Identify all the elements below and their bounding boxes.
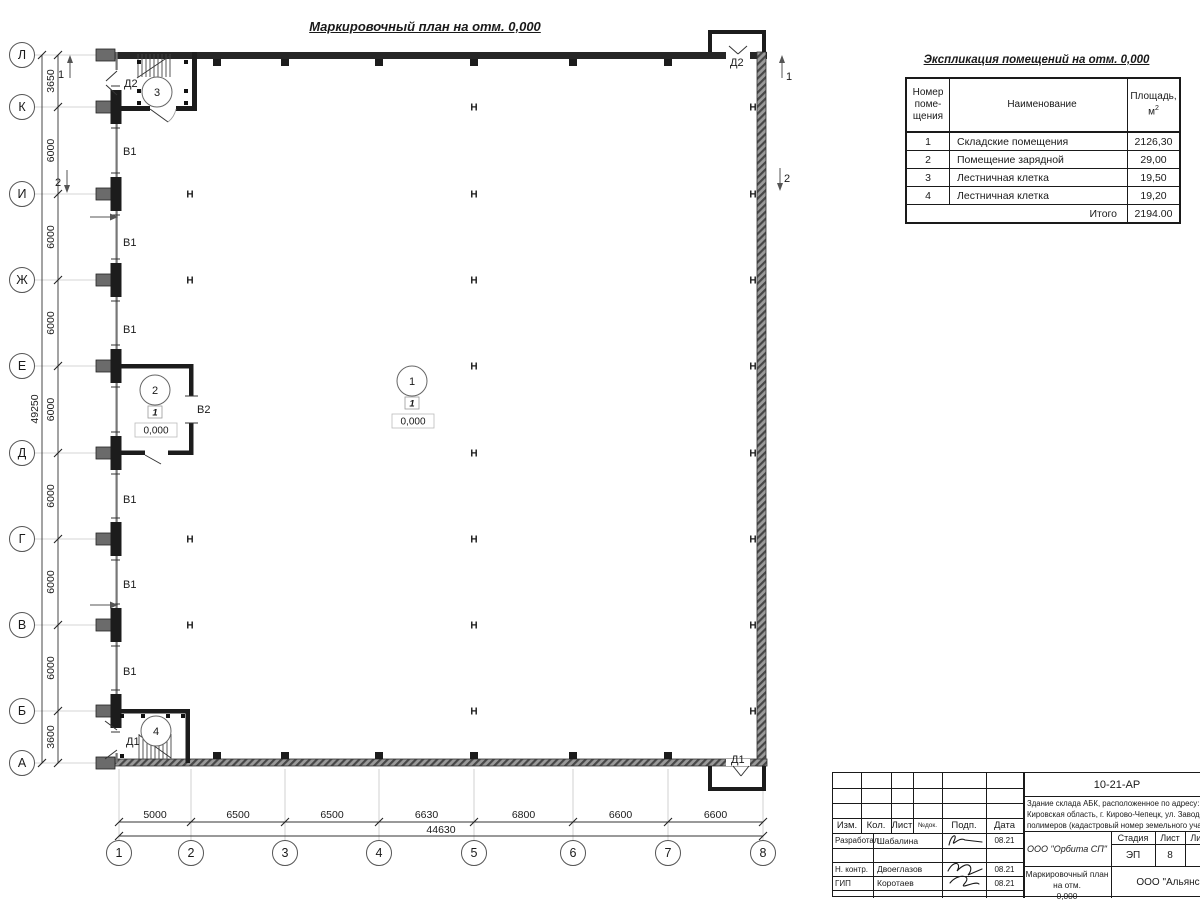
- wall-pilaster: [569, 59, 577, 66]
- tb-sheet-value: 8: [1155, 844, 1185, 866]
- dim-text: 6000: [45, 570, 57, 594]
- floor-type-number: 1: [152, 408, 157, 419]
- tb-col-izm: Изм.: [833, 818, 861, 833]
- axis-label: Д: [18, 446, 27, 460]
- axis-label: В: [18, 618, 26, 632]
- column-dot: [137, 101, 141, 105]
- dim-text: 6000: [45, 484, 57, 508]
- elevation-value: 0,000: [143, 426, 168, 437]
- room-wall: [189, 423, 194, 455]
- explication-panel: Экспликация помещений на отм. 0,000 Номе…: [905, 54, 1168, 224]
- room-number-cell: 2: [906, 151, 950, 169]
- axis-label: Б: [18, 704, 26, 718]
- column-dot: [184, 60, 188, 64]
- section-arrowhead: [777, 183, 783, 191]
- column-symbol: Н: [186, 276, 193, 287]
- column-dot: [120, 754, 124, 758]
- vestibule-wall: [762, 766, 766, 791]
- door-opening: [115, 727, 120, 753]
- column-dot: [166, 714, 170, 718]
- column-symbol: Н: [470, 621, 477, 632]
- wall-top: [112, 52, 767, 59]
- room-number: 3: [154, 87, 160, 99]
- column-symbol: Н: [186, 621, 193, 632]
- axis-label: 6: [570, 846, 577, 860]
- door-label: Д1: [126, 736, 140, 748]
- column-symbol: Н: [749, 103, 756, 114]
- column-symbol: Н: [470, 276, 477, 287]
- room-area-cell: 19,50: [1128, 169, 1181, 187]
- axis-label: 7: [665, 846, 672, 860]
- drawing-sheet: { "drawing_title": "Маркировочный план н…: [0, 0, 1200, 900]
- tb-date: 08.21: [986, 833, 1023, 848]
- wall-left: [116, 52, 118, 763]
- dim-text: 6500: [226, 809, 250, 821]
- dim-text: 6000: [45, 656, 57, 680]
- signature-scribble: [950, 876, 979, 886]
- wall-pilaster: [281, 752, 289, 759]
- table-row: 3 Лестничная клетка 19,50: [906, 169, 1180, 187]
- column-symbol: Н: [749, 449, 756, 460]
- room-name-cell: Лестничная клетка: [950, 187, 1128, 205]
- axis-label: К: [18, 100, 26, 114]
- wall-pilaster: [281, 59, 289, 66]
- elevation-value: 0,000: [400, 417, 425, 428]
- door-swing: [168, 109, 176, 122]
- tb-date: 08.21: [986, 876, 1023, 890]
- room-wall: [118, 106, 150, 111]
- axis-label: Е: [18, 359, 26, 373]
- wall-pilaster: [375, 752, 383, 759]
- gate-label: В1: [123, 666, 136, 678]
- tb-name: Шабалина: [877, 833, 941, 848]
- axis-label: 1: [116, 846, 123, 860]
- wall-bottom: [112, 759, 767, 766]
- dim-text: 6000: [45, 139, 57, 163]
- page-title: Маркировочный план на отм. 0,000: [125, 19, 725, 34]
- wall-pier: [111, 263, 122, 297]
- room-wall: [186, 709, 191, 763]
- room-number-cell: 3: [906, 169, 950, 187]
- tb-sheet-title: Маркировочный план на отм. 0,000: [1023, 869, 1111, 902]
- wall-pilaster: [569, 752, 577, 759]
- section-number: 1: [786, 71, 792, 83]
- section-arrowhead: [67, 55, 73, 63]
- room-number: 4: [153, 726, 159, 738]
- wall-pilaster: [96, 49, 115, 61]
- axis-label: Л: [18, 48, 26, 62]
- explication-title: Экспликация помещений на отм. 0,000: [905, 54, 1168, 66]
- column-dot: [137, 60, 141, 64]
- room-name-cell: Складские помещения: [950, 132, 1128, 151]
- tb-name: Коротаев: [877, 876, 941, 890]
- room-wall: [176, 106, 192, 111]
- total-label: Итого: [906, 205, 1128, 224]
- gate-label: В1: [123, 237, 136, 249]
- column-symbol: Н: [470, 190, 477, 201]
- floor-type-number: 1: [409, 399, 414, 410]
- door-leaf: [741, 766, 749, 776]
- tb-role: Разработал: [835, 833, 873, 848]
- dim-text: 6500: [320, 809, 344, 821]
- wall-pilaster: [664, 59, 672, 66]
- gate-label: В1: [123, 146, 136, 158]
- room-wall: [192, 52, 197, 111]
- table-row: 1 Складские помещения 2126,30: [906, 132, 1180, 151]
- wall-pilaster: [664, 752, 672, 759]
- tb-bottom-company: ООО "Альянс: [1111, 866, 1200, 898]
- door-label: Д2: [124, 78, 138, 90]
- dim-text: 6000: [45, 225, 57, 249]
- tb-col-kol: Кол.: [861, 818, 891, 833]
- room-wall: [168, 451, 193, 456]
- wall-pilaster: [213, 752, 221, 759]
- wall-pilaster: [375, 59, 383, 66]
- column-symbol: Н: [470, 535, 477, 546]
- room-number: 1: [409, 376, 415, 388]
- dim-total-text: 49250: [29, 394, 41, 423]
- room-name-cell: Помещение зарядной: [950, 151, 1128, 169]
- wall-pilaster: [470, 752, 478, 759]
- axis-label: 3: [282, 846, 289, 860]
- room-area-cell: 29,00: [1128, 151, 1181, 169]
- column-symbol: Н: [749, 190, 756, 201]
- signatures: [942, 831, 986, 893]
- tb-sheets-header: Листов: [1185, 831, 1200, 844]
- column-dot: [184, 89, 188, 93]
- tb-project-description: Здание склада АБК, расположенное по адре…: [1027, 798, 1200, 831]
- column-symbol: Н: [470, 707, 477, 718]
- signature-scribble: [949, 836, 982, 845]
- axis-label: 8: [760, 846, 767, 860]
- dim-text: 6000: [45, 398, 57, 422]
- dim-text: 6630: [415, 809, 439, 821]
- room-number: 2: [152, 385, 158, 397]
- column-symbol: Н: [470, 362, 477, 373]
- tb-stage-header: Стадия: [1111, 831, 1155, 844]
- column-symbol: Н: [749, 276, 756, 287]
- column-symbol: Н: [749, 621, 756, 632]
- axis-label: А: [18, 756, 27, 770]
- column-dot: [120, 714, 124, 718]
- room-area-cell: 2126,30: [1128, 132, 1181, 151]
- column-symbol: Н: [749, 535, 756, 546]
- column-dot: [184, 101, 188, 105]
- tb-col-list: Лист: [891, 818, 913, 833]
- door-label: Д1: [731, 754, 745, 766]
- tb-role: ГИП: [835, 876, 873, 890]
- col-header-area: Площадь, м2: [1128, 78, 1181, 132]
- column-symbol: Н: [749, 707, 756, 718]
- col-header-name: Наименование: [950, 78, 1128, 132]
- axis-label: 2: [188, 846, 195, 860]
- axis-label: 5: [471, 846, 478, 860]
- table-row: 4 Лестничная клетка 19,20: [906, 187, 1180, 205]
- column-dot: [181, 714, 185, 718]
- dim-text: 6800: [512, 809, 536, 821]
- room-number-cell: 4: [906, 187, 950, 205]
- room-name-cell: Лестничная клетка: [950, 169, 1128, 187]
- tb-role: Н. контр.: [835, 862, 873, 876]
- tb-sheet-header: Лист: [1155, 831, 1185, 844]
- tb-doc-number: 10-21-АР: [1023, 773, 1200, 796]
- section-number: 2: [55, 177, 61, 189]
- door-leaf: [150, 109, 168, 122]
- door-leaf: [733, 766, 741, 776]
- tb-company: ООО "Орбита СП": [1023, 831, 1111, 866]
- axis-label: И: [18, 187, 27, 201]
- door-label: Д2: [730, 57, 744, 69]
- dim-text: 3650: [45, 69, 57, 93]
- room-area-cell: 19,20: [1128, 187, 1181, 205]
- dim-text: 6600: [609, 809, 633, 821]
- dim-text: 5000: [143, 809, 167, 821]
- wall-pier: [111, 608, 122, 642]
- tb-stage-value: ЭП: [1111, 844, 1155, 866]
- tb-name: Двоеглазов: [877, 862, 941, 876]
- section-number: 1: [58, 69, 64, 81]
- gate-label: В1: [123, 324, 136, 336]
- col-header-number: Номер поме- щения: [906, 78, 950, 132]
- tb-col-ndok: №док.: [913, 818, 942, 833]
- column-symbol: Н: [186, 535, 193, 546]
- axis-label: Г: [19, 532, 26, 546]
- column-dot: [137, 89, 141, 93]
- room-number-cell: 1: [906, 132, 950, 151]
- dim-text: 3600: [45, 725, 57, 749]
- total-value: 2194.00: [1128, 205, 1181, 224]
- room-wall: [118, 451, 145, 456]
- section-arrowhead: [64, 185, 70, 193]
- section-number: 2: [784, 173, 790, 185]
- section-arrowhead: [779, 55, 785, 63]
- column-symbol: Н: [749, 362, 756, 373]
- tb-date: 08.21: [986, 862, 1023, 876]
- column-symbol: Н: [186, 190, 193, 201]
- vestibule-wall: [762, 30, 766, 52]
- table-total-row: Итого 2194.00: [906, 205, 1180, 224]
- tb-sheets-value: 1: [1185, 844, 1200, 866]
- tb-col-data: Дата: [986, 818, 1023, 833]
- axis-label: Ж: [16, 273, 28, 287]
- explication-header-row: Номер поме- щения Наименование Площадь, …: [906, 78, 1180, 132]
- wall-pilaster: [470, 59, 478, 66]
- explication-table: Номер поме- щения Наименование Площадь, …: [905, 77, 1181, 224]
- room-wall: [118, 709, 190, 714]
- dim-total-text: 44630: [426, 824, 455, 836]
- signature-scribble: [948, 863, 982, 875]
- column-dot: [141, 714, 145, 718]
- table-row: 2 Помещение зарядной 29,00: [906, 151, 1180, 169]
- gate-label: В1: [123, 494, 136, 506]
- wall-pier: [111, 177, 122, 211]
- gate-label: В1: [123, 579, 136, 591]
- dim-text: 6000: [45, 311, 57, 335]
- wall-pilaster: [213, 59, 221, 66]
- room-wall: [189, 364, 194, 396]
- door-leaf: [145, 455, 161, 464]
- dim-text: 6600: [704, 809, 728, 821]
- column-symbol: Н: [470, 449, 477, 460]
- room-wall: [118, 364, 193, 369]
- axis-label: 4: [376, 846, 383, 860]
- vestibule-wall: [708, 787, 766, 791]
- wall-right: [757, 52, 766, 766]
- gate-label: В2: [197, 404, 210, 416]
- wall-pier: [111, 522, 122, 556]
- column-symbol: Н: [470, 103, 477, 114]
- titleblock: Изм. Кол. Лист №док. Подп. Дата Разработ…: [832, 772, 1200, 897]
